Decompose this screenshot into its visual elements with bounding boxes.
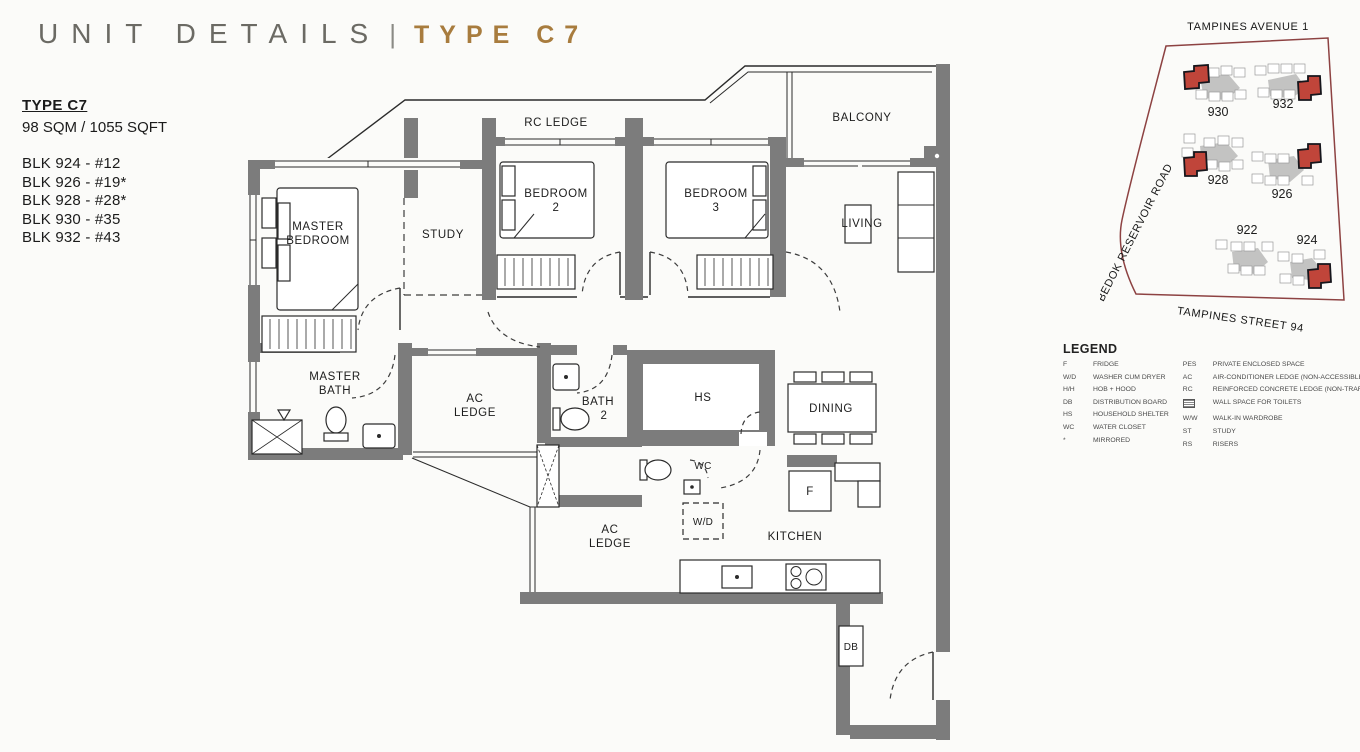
- svg-text:3: 3: [713, 202, 720, 214]
- highlighted-unit-926: [1298, 144, 1321, 168]
- living-label: LIVING: [841, 218, 882, 230]
- svg-text:BATH: BATH: [319, 385, 351, 397]
- block-item: BLK 924 - #12: [22, 155, 167, 174]
- kitchen-label: KITCHEN: [768, 531, 823, 543]
- road-label-left: BEDOK RESERVOIR ROAD: [1100, 162, 1175, 304]
- legend-column-right: PESPRIVATE ENCLOSED SPACE ACAIR-CONDITIO…: [1183, 359, 1360, 451]
- svg-text:LEDGE: LEDGE: [589, 538, 631, 550]
- block-item: BLK 932 - #43: [22, 229, 167, 248]
- unit-info-panel: TYPE C7 98 SQM / 1055 SQFT BLK 924 - #12…: [22, 96, 167, 248]
- ac-ledge-upper-label: AC: [466, 393, 483, 405]
- block-cluster-924: 924: [1278, 233, 1331, 288]
- bed2-wardrobe-icon: [497, 255, 575, 289]
- parapets: [412, 72, 792, 592]
- legend-item: RCREINFORCED CONCRETE LEDGE (NON-TRAFFIC…: [1183, 384, 1360, 397]
- rc-ledge-label: RC LEDGE: [524, 117, 588, 129]
- bath2-label: BATH: [582, 396, 614, 408]
- legend-item: DBDISTRIBUTION BOARD: [1063, 397, 1169, 410]
- balcony-label: BALCONY: [832, 112, 891, 124]
- page-title: UNIT DETAILS: [38, 18, 381, 50]
- hatched-box-icon: [1183, 399, 1195, 408]
- bedroom3-label: BEDROOM: [684, 188, 748, 200]
- site-map: TAMPINES AVENUE 1 BEDOK RESERVOIR ROAD T…: [1100, 8, 1356, 342]
- legend-item: HSHOUSEHOLD SHELTER: [1063, 409, 1169, 422]
- block-item: BLK 928 - #28*: [22, 192, 167, 211]
- block-cluster-930: 930: [1184, 65, 1246, 119]
- page-header: UNIT DETAILS | TYPE C7: [38, 18, 588, 50]
- legend-item: W/WWALK-IN WARDROBE: [1183, 413, 1360, 426]
- tv-console-icon: [898, 172, 934, 272]
- bedroom2-label: BEDROOM: [524, 188, 588, 200]
- bed2-icon: [500, 162, 594, 238]
- block-list: BLK 924 - #12 BLK 926 - #19* BLK 928 - #…: [22, 155, 167, 248]
- unit-type-title: TYPE C7: [414, 21, 588, 50]
- ac-ledge-lower-label: AC: [601, 524, 618, 536]
- bed3-icon: [666, 162, 768, 238]
- svg-text:LEDGE: LEDGE: [454, 407, 496, 419]
- master-bath-label: MASTER: [309, 371, 361, 383]
- block-cluster-928: 928: [1182, 134, 1243, 187]
- legend-title: LEGEND: [1063, 342, 1355, 356]
- unit-area: 98 SQM / 1055 SQFT: [22, 118, 167, 138]
- legend-item: RSRISERS: [1183, 439, 1360, 452]
- legend-item: H/HHOB + HOOD: [1063, 384, 1169, 397]
- unit-details-page: { "header": { "title": "UNIT DETAILS", "…: [0, 0, 1360, 752]
- road-label-top: TAMPINES AVENUE 1: [1187, 21, 1309, 33]
- wd-label: W/D: [693, 517, 713, 528]
- block-label-928: 928: [1208, 173, 1229, 187]
- block-label-926: 926: [1272, 187, 1293, 201]
- wc-label: WC: [694, 461, 711, 472]
- legend-item: FFRIDGE: [1063, 359, 1169, 372]
- block-item: BLK 926 - #19*: [22, 174, 167, 193]
- road-label-bottom: TAMPINES STREET 94: [1176, 305, 1304, 335]
- legend-item: WCWATER CLOSET: [1063, 422, 1169, 435]
- svg-text:BEDROOM: BEDROOM: [286, 235, 350, 247]
- block-label-922: 922: [1237, 223, 1258, 237]
- study-boundary: [404, 198, 482, 295]
- floor-plan: RC LEDGE BALCONY MASTER BEDROOM STUDY BE…: [240, 55, 965, 745]
- wc-fixtures: [640, 460, 700, 494]
- master-wardrobe-icon: [262, 316, 356, 352]
- legend-item: W/DWASHER CUM DRYER: [1063, 372, 1169, 385]
- block-cluster-932: 932: [1255, 64, 1321, 111]
- master-bed-icon: [262, 188, 358, 310]
- block-item: BLK 930 - #35: [22, 211, 167, 230]
- study-label: STUDY: [422, 229, 464, 241]
- block-cluster-926: 926: [1252, 144, 1321, 201]
- legend-item: STSTUDY: [1183, 426, 1360, 439]
- svg-text:2: 2: [553, 202, 560, 214]
- legend-item: ACAIR-CONDITIONER LEDGE (NON-ACCESSIBLE): [1183, 372, 1360, 385]
- riser-shaft-icon: [537, 445, 559, 507]
- legend: LEGEND FFRIDGE W/DWASHER CUM DRYER H/HHO…: [1063, 342, 1355, 451]
- db-label: DB: [844, 642, 859, 653]
- hs-label: HS: [694, 392, 711, 404]
- master-bath-fixtures: [252, 407, 395, 454]
- dining-label: DINING: [809, 403, 853, 415]
- highlighted-unit-932: [1298, 76, 1321, 100]
- block-cluster-922: 922: [1216, 223, 1273, 275]
- block-label-930: 930: [1208, 105, 1229, 119]
- legend-item: *MIRRORED: [1063, 435, 1169, 448]
- svg-text:2: 2: [601, 410, 608, 422]
- block-label-924: 924: [1297, 233, 1318, 247]
- legend-item: PESPRIVATE ENCLOSED SPACE: [1183, 359, 1360, 372]
- master-bedroom-label: MASTER: [292, 221, 344, 233]
- legend-column-left: FFRIDGE W/DWASHER CUM DRYER H/HHOB + HOO…: [1063, 359, 1169, 451]
- title-separator: |: [389, 19, 396, 50]
- fridge-label: F: [806, 486, 814, 498]
- legend-item: WALL SPACE FOR TOILETS: [1183, 397, 1360, 414]
- block-label-932: 932: [1273, 97, 1294, 111]
- kitchen-fixtures: [680, 463, 880, 593]
- unit-type-label: TYPE C7: [22, 96, 167, 116]
- bed3-wardrobe-icon: [697, 255, 773, 289]
